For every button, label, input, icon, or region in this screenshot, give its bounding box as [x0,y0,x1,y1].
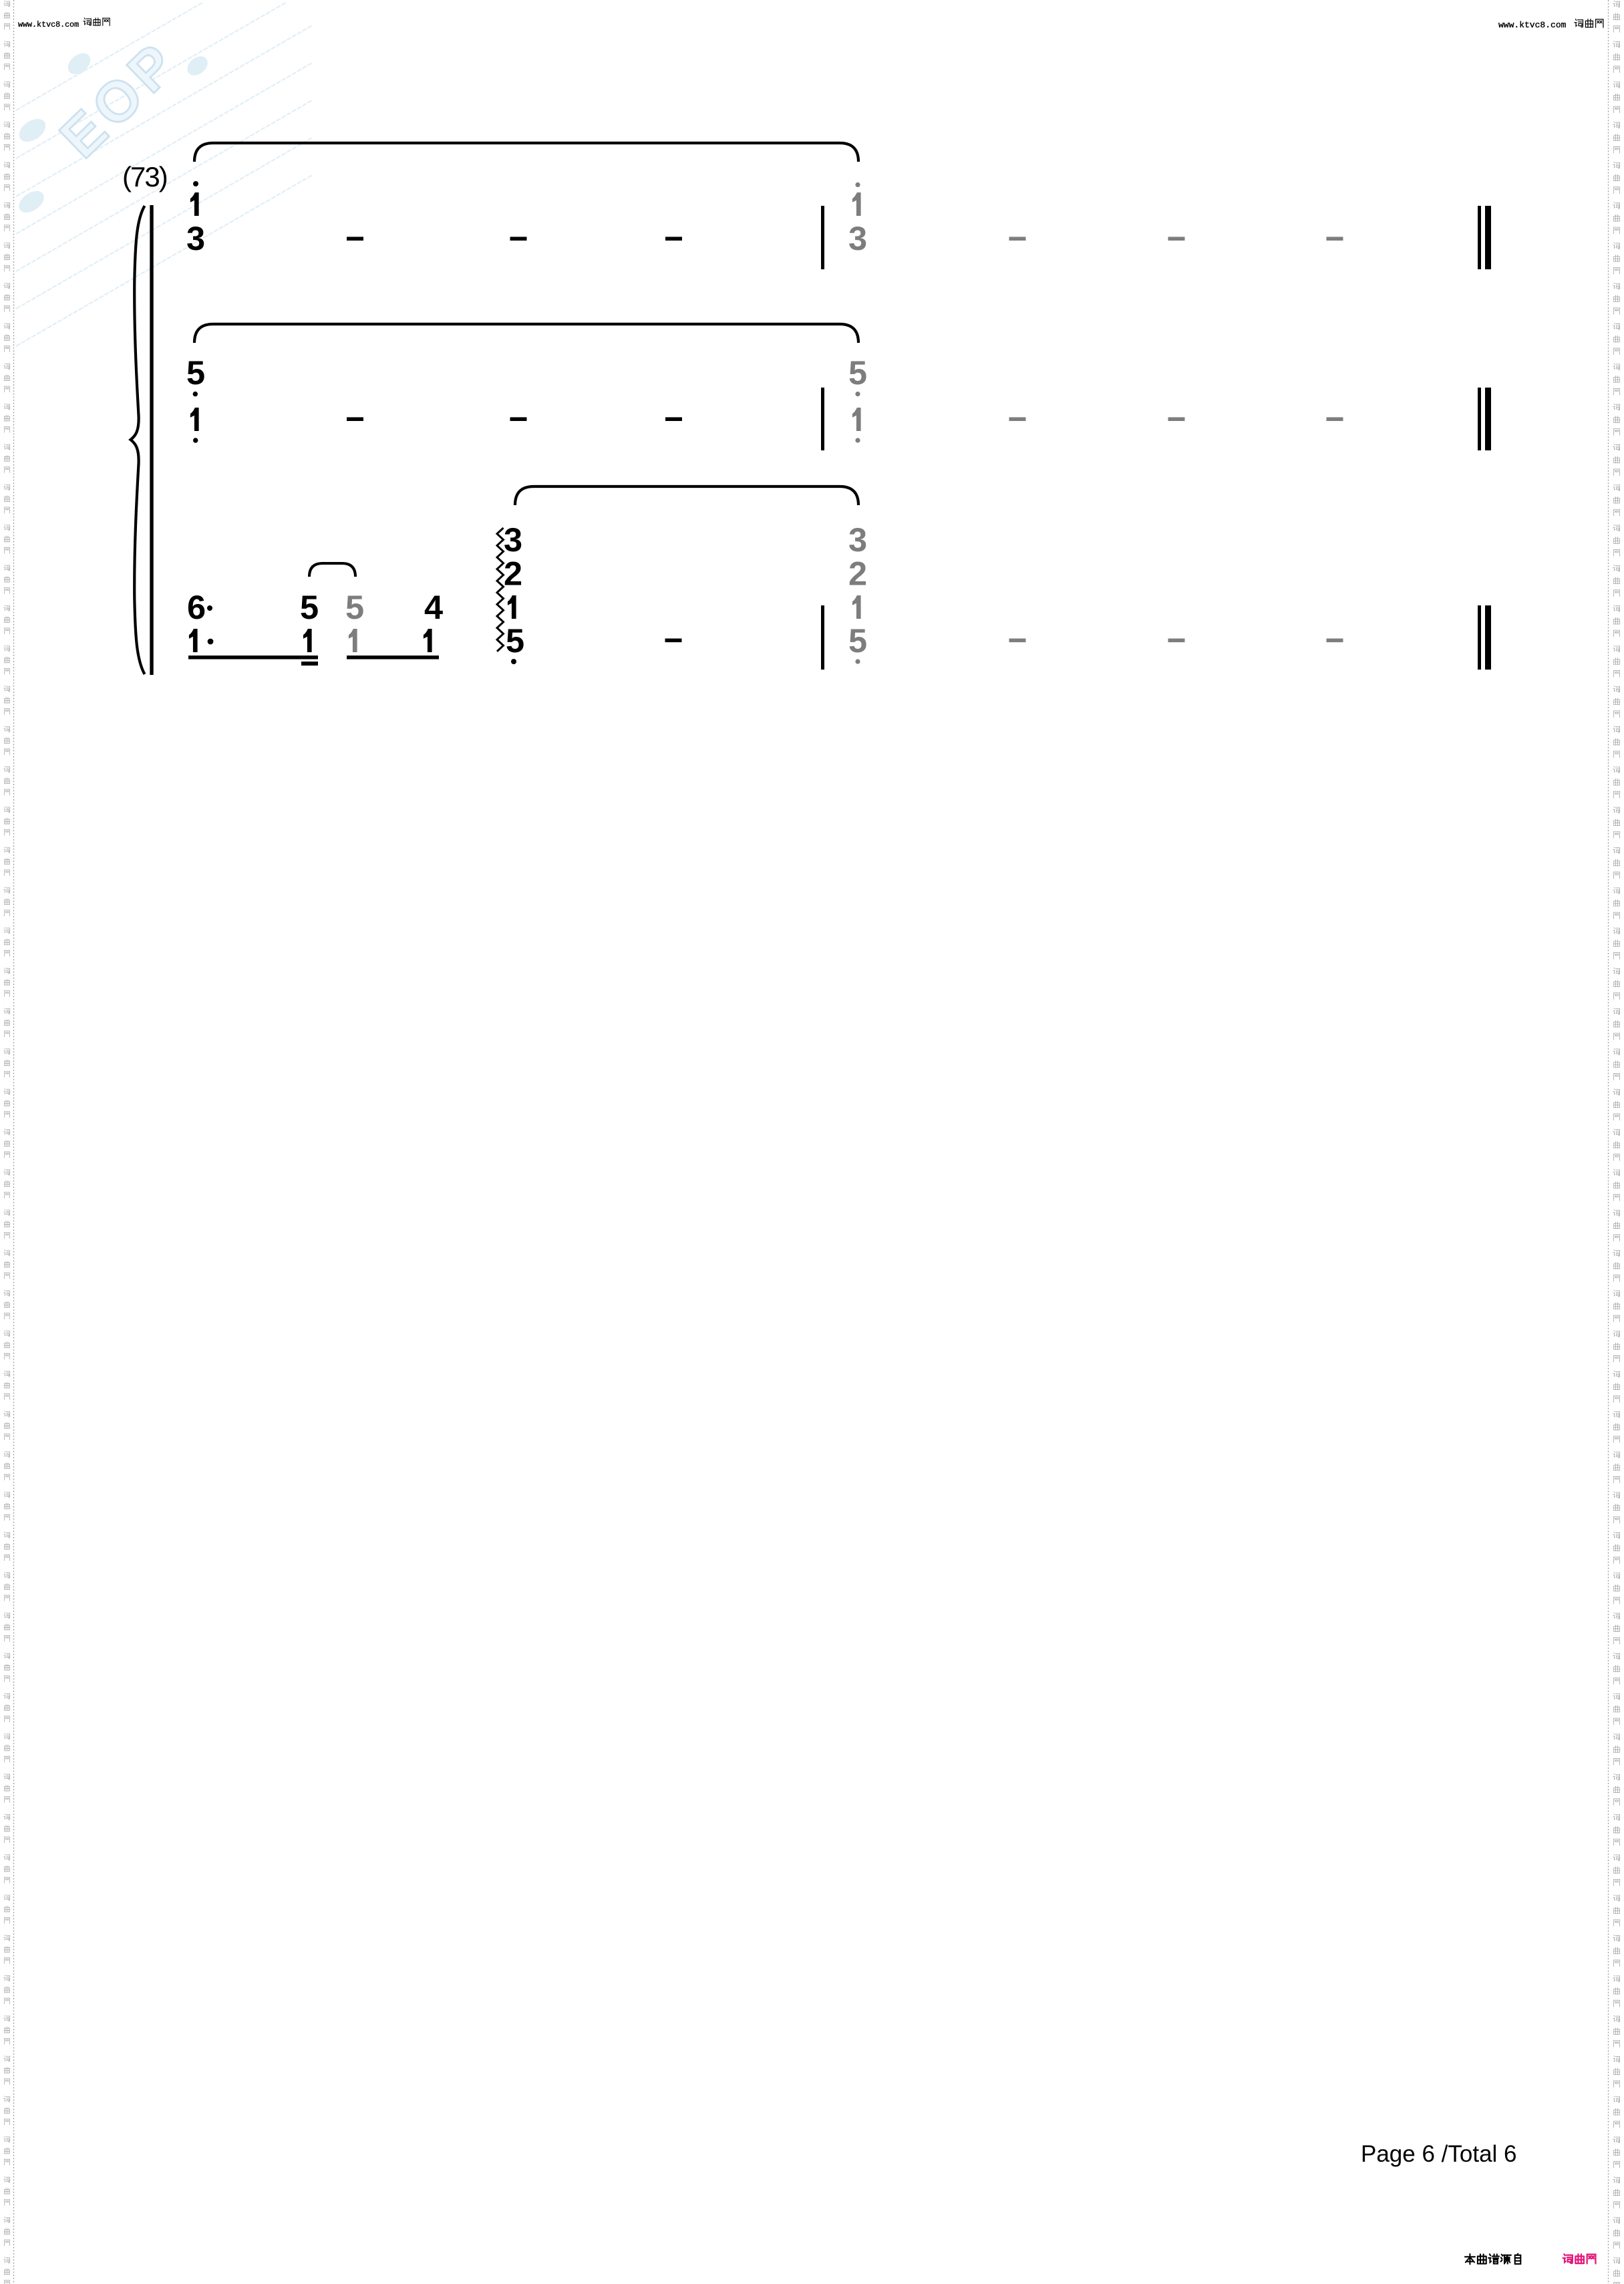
svg-text:4: 4 [424,588,443,626]
svg-text:5: 5 [848,353,867,392]
svg-text:2: 2 [504,555,522,593]
svg-text:5: 5 [345,588,364,626]
svg-text:2: 2 [848,555,867,593]
svg-text:Page 6 /Total 6: Page 6 /Total 6 [1361,2141,1517,2167]
svg-text:3: 3 [504,521,522,559]
svg-text:3: 3 [186,219,205,257]
svg-text:5: 5 [186,353,205,392]
svg-text:6: 6 [187,588,206,626]
svg-text:5: 5 [300,588,319,626]
svg-text:3: 3 [848,521,867,559]
svg-text:3: 3 [848,219,867,257]
svg-text:EOP: EOP [48,29,192,170]
svg-text:www.ktvc8.com: www.ktvc8.com [1498,20,1567,30]
svg-text:(73): (73) [122,161,167,192]
svg-text:5: 5 [506,621,524,660]
svg-text:www.ktvc8.com: www.ktvc8.com [18,20,79,29]
svg-text:5: 5 [848,621,867,660]
